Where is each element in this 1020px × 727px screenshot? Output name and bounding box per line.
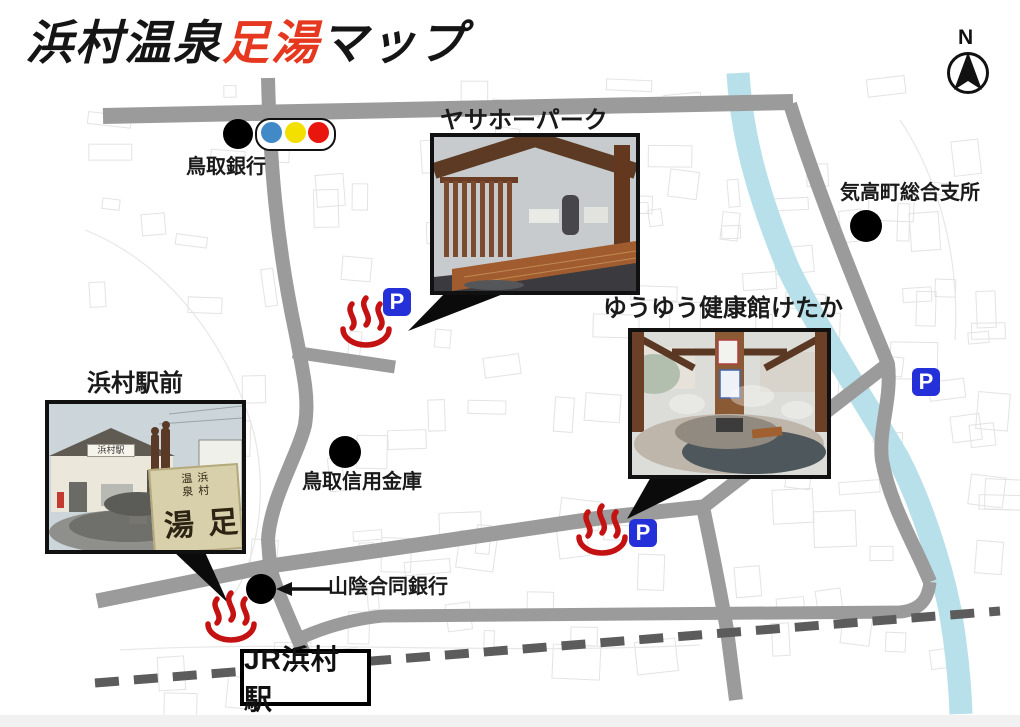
traffic-light-icon	[255, 118, 336, 151]
page-title: 浜村温泉足湯マップ	[26, 4, 467, 73]
hamamura-ekimae-label: 浜村駅前	[87, 371, 183, 396]
signal-blue-lamp	[261, 122, 282, 143]
station-building-sign: 浜村駅	[87, 444, 135, 457]
hamamura-ekimae-photo: 浜村駅 浜村温泉 足湯	[45, 400, 246, 554]
signal-yellow-lamp	[285, 122, 306, 143]
yasaho-park-photo	[430, 133, 640, 295]
parking-icon-yuyu: P	[629, 519, 657, 547]
title-black-1: 浜村温泉	[26, 16, 222, 71]
tottori-bank-label: 鳥取銀行	[186, 157, 266, 178]
title-black-2: マップ	[320, 16, 467, 71]
sanin-godo-bank-label: 山陰合同銀行	[328, 577, 448, 598]
parking-icon-river: P	[912, 368, 940, 396]
tottori-shinkin-dot	[329, 436, 361, 468]
parking-icon-yasaho: P	[383, 288, 411, 316]
tottori-shinkin-label: 鳥取信用金庫	[302, 472, 422, 493]
map-canvas: 浜村温泉足湯マップ N ヤサホーパーク	[0, 0, 1020, 727]
road-signal-vertical	[268, 78, 310, 668]
yasaho-park-photo-art	[434, 137, 636, 291]
yuyu-kenkokan-photo-art	[632, 332, 827, 475]
compass-north-label: N	[958, 26, 973, 50]
yuyu-kenkokan-label: ゆうゆう健康館けたか	[603, 296, 843, 321]
title-red: 足湯	[222, 16, 320, 71]
ketaka-office-label: 気高町総合支所	[840, 183, 980, 204]
sanin-godo-bank-dot	[246, 574, 276, 604]
ashiyu-wooden-sign: 浜村温泉 足湯	[148, 463, 244, 554]
yasaho-park-label: ヤサホーパーク	[440, 108, 608, 133]
wooden-sign-large-text: 足湯	[152, 505, 243, 553]
onsen-icon-ekimae	[208, 593, 254, 640]
yuyu-kenkokan-photo	[628, 328, 831, 479]
road-station-south	[703, 507, 736, 700]
jr-hamamura-station-box: JR浜村駅	[240, 649, 371, 706]
pointer-yasaho	[408, 291, 511, 331]
wooden-sign-small-text: 浜村温泉	[177, 471, 211, 503]
jr-hamamura-station-label: JR浜村駅	[244, 638, 367, 718]
bottom-edge-strip	[0, 715, 1020, 727]
signal-red-lamp	[308, 122, 329, 143]
ketaka-office-dot	[850, 210, 882, 242]
compass-icon	[949, 52, 988, 93]
tottori-bank-dot	[223, 119, 253, 149]
